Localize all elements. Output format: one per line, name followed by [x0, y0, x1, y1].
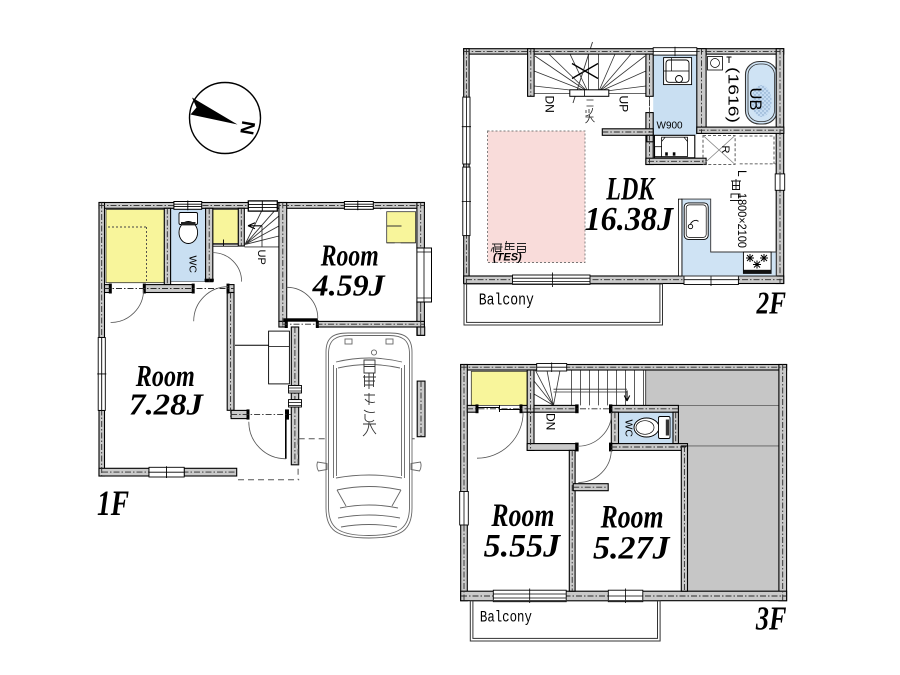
svg-text:DN: DN	[543, 96, 557, 113]
svg-text:16.38J: 16.38J	[585, 201, 674, 238]
svg-text:(1616): (1616)	[725, 67, 742, 123]
svg-text:UP: UP	[255, 250, 267, 265]
svg-text:(TES): (TES)	[493, 252, 522, 264]
svg-text:2F: 2F	[756, 285, 786, 321]
svg-text:WC: WC	[187, 256, 199, 274]
svg-text:7.28J: 7.28J	[129, 387, 205, 422]
svg-text:UP: UP	[617, 96, 631, 113]
svg-text:5.55J: 5.55J	[484, 529, 562, 565]
svg-text:1800×2100: 1800×2100	[735, 193, 749, 248]
svg-text:5.27J: 5.27J	[593, 531, 671, 567]
svg-text:R: R	[719, 146, 731, 154]
svg-text:N: N	[235, 119, 258, 136]
svg-text:WC: WC	[623, 420, 635, 438]
svg-text:4.59J: 4.59J	[312, 268, 387, 303]
svg-text:3F: 3F	[755, 601, 787, 638]
svg-text:DN: DN	[544, 413, 558, 430]
svg-text:W900: W900	[657, 121, 684, 132]
svg-text:UB: UB	[746, 88, 765, 111]
svg-text:1F: 1F	[97, 483, 129, 523]
svg-text:L: L	[735, 170, 749, 177]
svg-text:Balcony: Balcony	[480, 609, 532, 627]
svg-text:Balcony: Balcony	[479, 291, 534, 310]
